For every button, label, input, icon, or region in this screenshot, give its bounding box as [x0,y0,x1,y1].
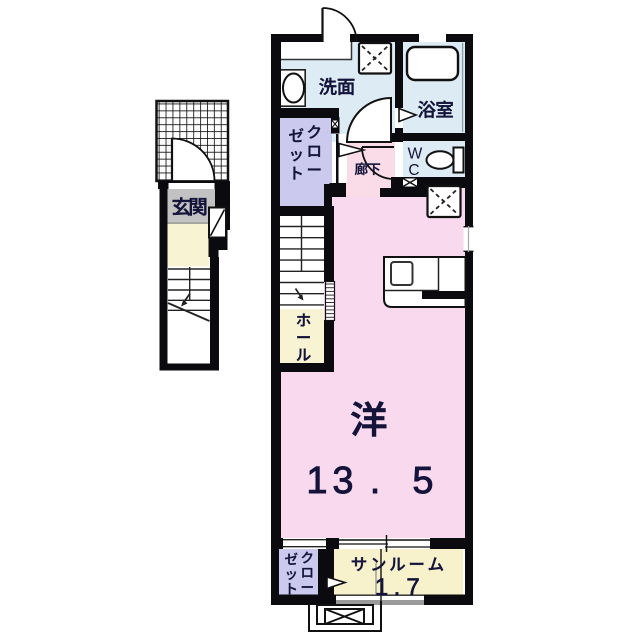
svg-text:1: 1 [306,460,327,502]
svg-text:5: 5 [412,460,433,502]
svg-text:C: C [408,162,419,179]
svg-text:W: W [408,146,423,163]
svg-text:3: 3 [332,460,353,502]
svg-text:.: . [394,574,401,601]
svg-text:1: 1 [375,574,388,601]
svg-text:7: 7 [406,574,419,601]
svg-text:.: . [370,460,381,502]
